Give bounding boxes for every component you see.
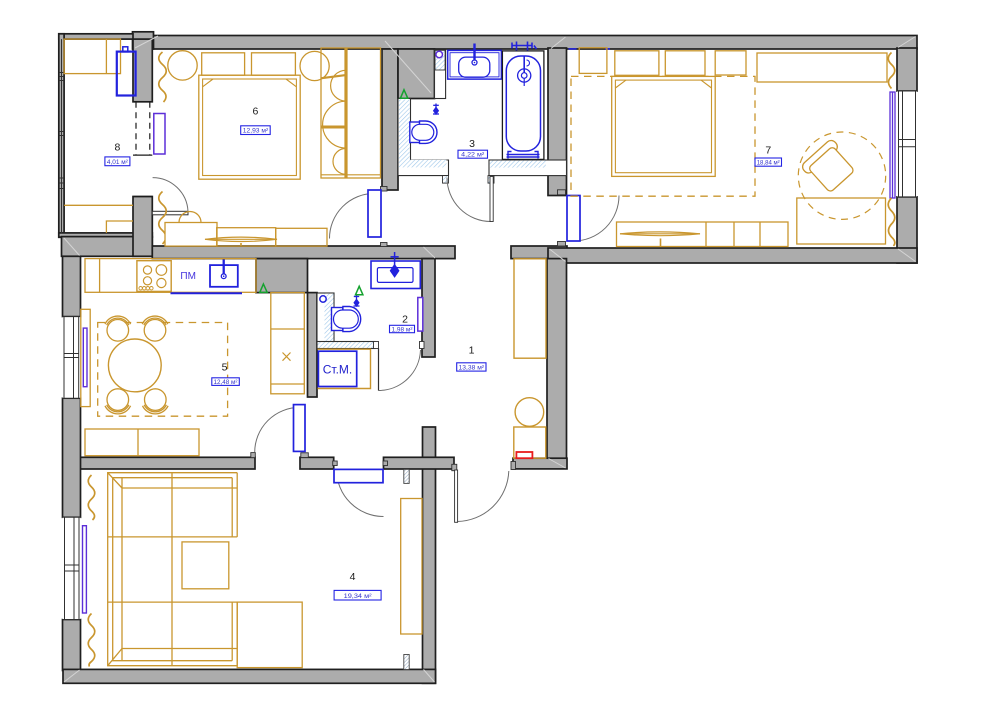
svg-text:5: 5: [222, 361, 228, 373]
svg-text:4,01 м²: 4,01 м²: [107, 159, 128, 166]
svg-text:4: 4: [350, 571, 356, 583]
svg-text:1: 1: [469, 345, 475, 357]
svg-text:2: 2: [402, 314, 408, 326]
svg-text:4,22 м²: 4,22 м²: [461, 152, 484, 159]
svg-text:19,34 м²: 19,34 м²: [344, 593, 372, 600]
svg-text:12,48 м²: 12,48 м²: [214, 379, 238, 386]
svg-text:1,98 м²: 1,98 м²: [392, 326, 413, 333]
svg-text:3: 3: [469, 138, 475, 150]
svg-text:7: 7: [765, 144, 771, 156]
svg-text:6: 6: [252, 105, 258, 117]
svg-text:8: 8: [114, 141, 120, 153]
svg-text:ПМ: ПМ: [180, 271, 196, 282]
svg-text:13,38 м²: 13,38 м²: [459, 365, 485, 372]
svg-text:18,84 м²: 18,84 м²: [757, 160, 780, 167]
svg-text:Ст.М.: Ст.М.: [323, 363, 353, 377]
svg-text:12,93 м²: 12,93 м²: [243, 128, 269, 135]
